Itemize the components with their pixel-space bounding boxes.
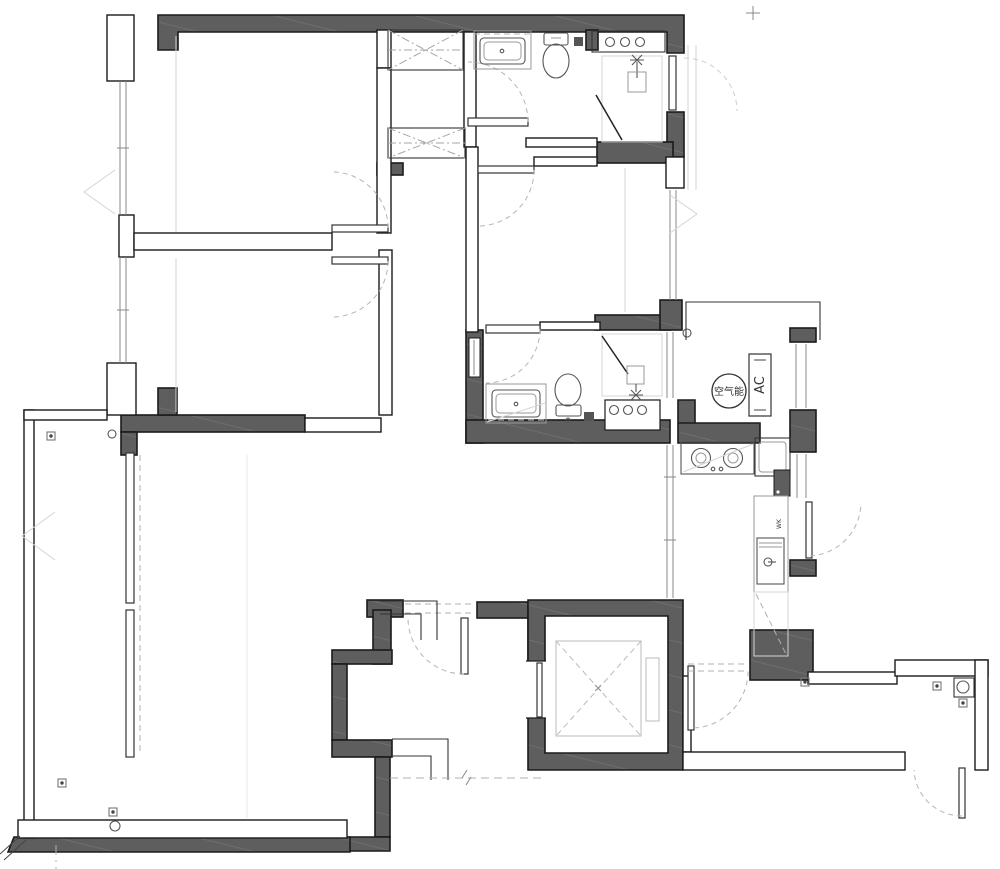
wall-bed3-bottom: [595, 315, 670, 330]
floorplan-canvas: 空气能 AC WK: [0, 0, 1000, 869]
wall-bed2-bottom: [121, 415, 305, 432]
bath1-niche-icon: [592, 31, 665, 52]
door-bed3: [478, 166, 534, 226]
bath2-drain-icon: [584, 412, 594, 421]
door-bath2: [486, 325, 540, 383]
drain-icon: [58, 779, 66, 787]
wall-bed2-bottom-thin: [305, 418, 381, 432]
elevator-shaft-walls: [528, 600, 683, 770]
wall-bath1-bottom: [526, 138, 597, 147]
door-kitchen-side: [806, 502, 861, 558]
wall-right-r1: [790, 328, 816, 342]
window-living-balcony-door: [126, 453, 140, 757]
wall-foyer-right-top: [477, 602, 533, 618]
ac-label: AC: [753, 376, 768, 394]
guide-lines-entry: [688, 45, 696, 190]
window-kitchen-right-lower: [797, 454, 806, 498]
wall-bath2-top-thin: [540, 322, 600, 330]
terrace-rail-top-right: [895, 660, 988, 676]
elevator-car-icon: [556, 641, 659, 736]
wall-foyer-3: [332, 650, 392, 664]
wall-left-stub-mid: [119, 215, 134, 257]
wall-foyer-5: [332, 740, 392, 757]
wall-right-r2: [790, 410, 816, 452]
door-passage: [688, 666, 748, 730]
window-utility-left: [667, 329, 691, 398]
opening-passage: [688, 664, 748, 671]
wall-bed1-right-upper: [377, 30, 391, 68]
window-bed2-left: [117, 257, 129, 363]
wall-utility-left-top: [660, 300, 682, 330]
bath1-drain-icon: [574, 37, 583, 46]
wall-hall-right: [466, 147, 478, 332]
elevator-sliding-door: [537, 663, 542, 717]
floor-plan: 空气能 AC WK: [0, 0, 1000, 869]
door-equipment-platform: [669, 56, 737, 111]
shower-1-icon: [596, 55, 662, 142]
water-heater-label: WK: [776, 518, 783, 529]
wall-bed2-bottom-stub: [158, 388, 177, 415]
terrace-rail-top-left: [808, 672, 897, 684]
wall-right-r3: [790, 560, 816, 576]
drain-icon: [109, 808, 117, 816]
wall-foyer-6: [375, 757, 390, 837]
window-kitchen-left: [664, 445, 676, 598]
drain-icon: [933, 682, 941, 690]
lobby-boundary-dashed: [390, 770, 543, 785]
opening-foyer-top: [405, 604, 475, 613]
shower-2-icon: [602, 334, 662, 400]
column-marker-icon: [108, 430, 116, 438]
heat-pump-icon: 空气能: [712, 374, 746, 408]
vanity-sink-1-icon: [474, 31, 531, 69]
heat-pump-label: 空气能: [714, 385, 744, 398]
elevator-counterweight-icon: [646, 658, 659, 721]
balcony-rail-bottom: [18, 820, 347, 838]
wardrobe-2-icon: [388, 128, 465, 158]
drain-icon: [47, 432, 55, 440]
door-bath1: [468, 62, 528, 126]
wall-left-stub-low: [107, 363, 136, 415]
wall-foyer-4: [332, 664, 347, 740]
balcony-rail-top: [24, 410, 107, 420]
vanity-sink-2-icon: [486, 384, 546, 423]
door-entry-foyer: [408, 618, 468, 674]
window-kitchen-right-upper: [796, 344, 806, 408]
wall-balcony-bottom-band: [8, 837, 350, 852]
terrace-sink-icon: [954, 678, 974, 697]
elevator-door-opening: [526, 661, 546, 718]
terrace-rail-right: [975, 660, 988, 770]
gas-stove-icon: [681, 442, 754, 474]
drain-icon: [959, 699, 967, 707]
wall-topleft-stub: [107, 15, 134, 81]
wall-utility-bottom: [678, 400, 760, 443]
wall-bedroom-partition: [134, 233, 332, 250]
wall-bed3-top-thin: [534, 157, 597, 166]
toilet-1-icon: [543, 33, 569, 78]
window-bed3-right: [666, 157, 684, 300]
ac-unit-icon: AC: [749, 354, 771, 416]
window-bed1-left: [117, 81, 129, 215]
wardrobe-1-icon: [388, 30, 463, 70]
axis-tick-icon: [746, 6, 760, 20]
door-terrace: [914, 768, 965, 818]
wall-bed3-top: [597, 142, 673, 163]
toilet-2-icon: [555, 374, 581, 422]
wall-passage-bottom-band: [683, 752, 905, 770]
bath2-niche-box: [605, 400, 660, 430]
balcony-rail-left: [24, 410, 34, 838]
wall-bed2-right: [379, 250, 392, 415]
wall-right-of-elevator: [750, 630, 813, 680]
wall-left-tab: [121, 432, 137, 455]
